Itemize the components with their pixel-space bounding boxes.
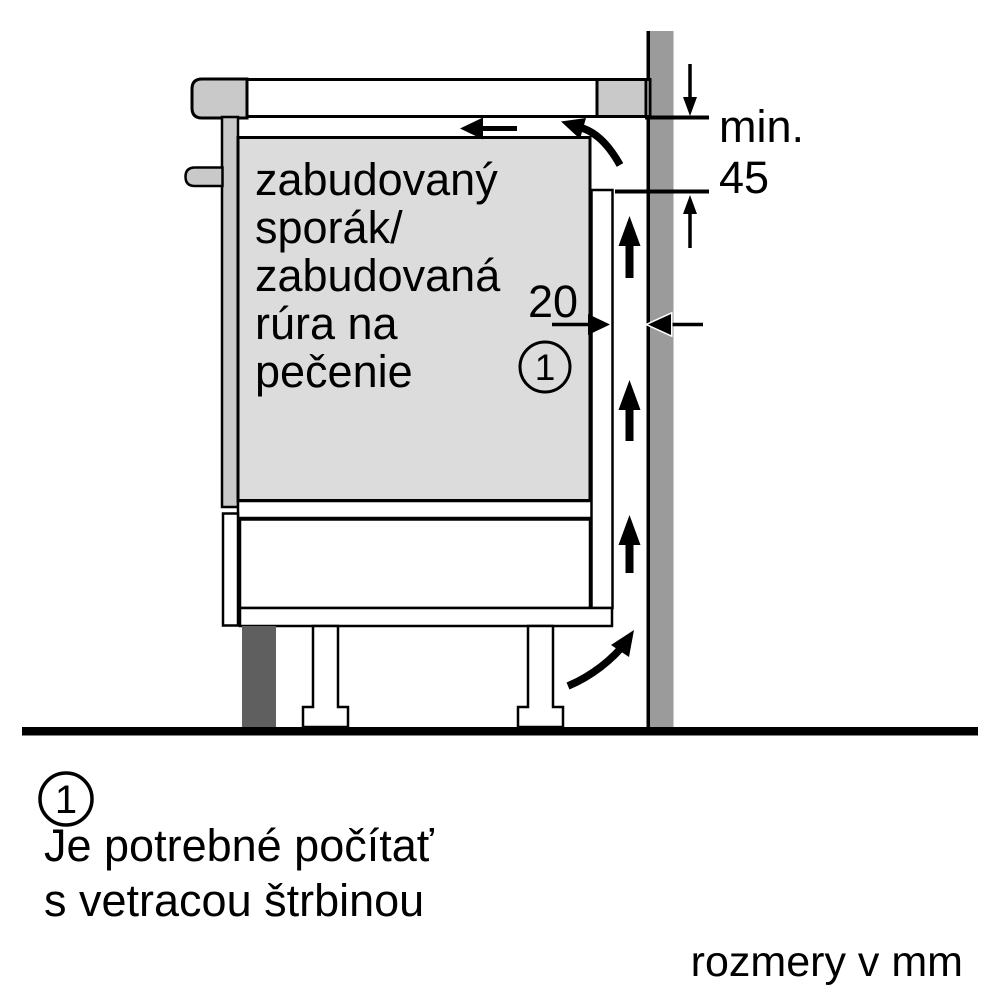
worktop xyxy=(245,80,650,117)
legend-note-line: s vetracou štrbinou xyxy=(44,875,424,926)
airflow-curve-top-head-icon xyxy=(561,118,586,139)
plinth xyxy=(242,626,276,727)
cabinet-front-frame xyxy=(222,117,238,507)
hob-front-trim xyxy=(192,79,247,118)
dim-gap-value: 20 xyxy=(528,276,578,327)
airflow-up-arrow-icon xyxy=(619,515,641,573)
cabinet-side-strip xyxy=(223,514,238,626)
cabinet-rear-panel xyxy=(592,190,613,608)
cabinet-bottom-panel xyxy=(240,608,612,626)
dim-min-arrow-up-icon xyxy=(683,195,697,214)
appliance-label-line: rúra na xyxy=(255,298,399,349)
appliance-label-line: zabudovaný xyxy=(255,154,498,205)
wall xyxy=(649,31,674,727)
dim-min-tick-lower xyxy=(615,190,709,194)
hob-rear-block xyxy=(597,80,646,117)
oven-handle xyxy=(186,168,223,187)
wall-edge-line xyxy=(647,31,651,727)
airflow-up-arrow-icon xyxy=(619,380,641,441)
floor-line xyxy=(22,727,978,736)
dim-min-label: min. xyxy=(719,101,804,152)
callout-1-number: 1 xyxy=(535,347,556,388)
left-leg xyxy=(303,626,348,727)
legend-marker-number: 1 xyxy=(55,778,77,822)
appliance-label-line: zabudovaná xyxy=(255,250,501,301)
airflow-up-arrow-icon xyxy=(619,216,641,278)
cabinet-shelf xyxy=(238,501,592,518)
legend-note-line: Je potrebné počítať xyxy=(44,820,435,871)
dim-min-arrow-down-icon xyxy=(683,97,697,116)
installation-diagram-page: min. 45 20 1 zabudovaný sporák/ zabudova… xyxy=(0,0,1000,1000)
dim-min-value: 45 xyxy=(719,152,769,203)
appliance-label-line: sporák/ xyxy=(255,202,403,253)
legend: 1 Je potrebné počítať s vetracou štrbino… xyxy=(40,773,435,926)
drawer-box xyxy=(240,520,590,609)
appliance-label-line: pečenie xyxy=(255,346,413,397)
dim-min-tick-upper xyxy=(645,116,709,120)
right-leg xyxy=(518,626,563,727)
units-note: rozmery v mm xyxy=(691,938,963,986)
installation-diagram: min. 45 20 1 zabudovaný sporák/ zabudova… xyxy=(0,0,1000,1000)
